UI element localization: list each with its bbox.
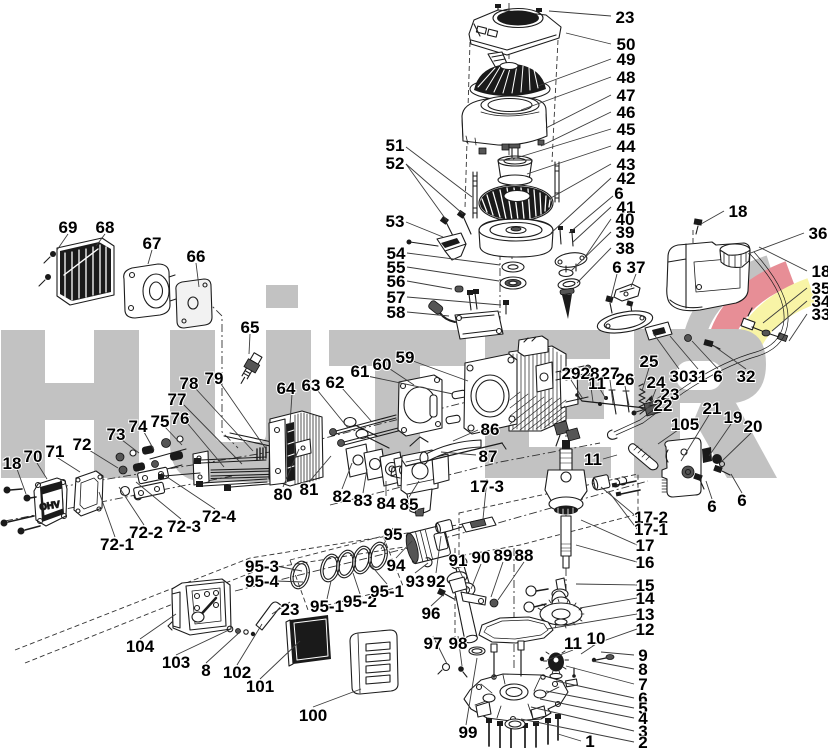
svg-text:82: 82: [333, 487, 352, 506]
svg-text:36: 36: [809, 224, 828, 243]
svg-text:52: 52: [386, 154, 405, 173]
svg-text:73: 73: [107, 425, 126, 444]
svg-text:72-4: 72-4: [202, 507, 237, 526]
svg-text:95-1: 95-1: [370, 582, 404, 601]
svg-text:16: 16: [636, 553, 655, 572]
svg-text:85: 85: [400, 495, 419, 514]
svg-text:91: 91: [449, 551, 468, 570]
svg-text:19: 19: [724, 408, 743, 427]
svg-text:44: 44: [617, 137, 636, 156]
svg-text:58: 58: [387, 303, 406, 322]
svg-text:20: 20: [744, 417, 763, 436]
svg-text:74: 74: [129, 417, 148, 436]
svg-text:31: 31: [689, 367, 708, 386]
svg-text:6: 6: [707, 497, 716, 516]
svg-text:104: 104: [126, 637, 155, 656]
svg-text:37: 37: [627, 258, 646, 277]
svg-text:99: 99: [459, 723, 478, 742]
svg-text:87: 87: [479, 447, 498, 466]
svg-text:97: 97: [424, 634, 443, 653]
svg-text:61: 61: [351, 362, 370, 381]
svg-text:60: 60: [373, 355, 392, 374]
svg-text:8: 8: [201, 661, 210, 680]
svg-text:89: 89: [494, 546, 513, 565]
svg-text:22: 22: [654, 396, 673, 415]
svg-text:64: 64: [277, 379, 296, 398]
svg-text:65: 65: [241, 318, 260, 337]
svg-text:25: 25: [640, 352, 659, 371]
svg-text:90: 90: [472, 548, 491, 567]
svg-text:49: 49: [617, 50, 636, 69]
svg-text:23: 23: [281, 600, 300, 619]
svg-text:68: 68: [96, 218, 115, 237]
svg-text:71: 71: [46, 442, 65, 461]
svg-text:2: 2: [638, 733, 647, 748]
svg-text:72-2: 72-2: [129, 523, 163, 542]
svg-text:92: 92: [427, 572, 446, 591]
svg-text:32: 32: [737, 367, 756, 386]
svg-text:95-1: 95-1: [310, 597, 344, 616]
svg-text:103: 103: [162, 653, 190, 672]
svg-text:79: 79: [205, 369, 224, 388]
svg-text:96: 96: [422, 604, 441, 623]
svg-text:12: 12: [636, 620, 655, 639]
svg-text:80: 80: [274, 485, 293, 504]
svg-text:72: 72: [73, 435, 92, 454]
svg-text:6: 6: [612, 258, 621, 277]
svg-text:26: 26: [616, 370, 635, 389]
svg-text:86: 86: [481, 420, 500, 439]
svg-text:75: 75: [151, 412, 170, 431]
svg-text:101: 101: [246, 677, 274, 696]
svg-text:53: 53: [386, 212, 405, 231]
svg-text:10: 10: [587, 629, 606, 648]
svg-text:11: 11: [564, 634, 582, 653]
svg-text:98: 98: [449, 634, 468, 653]
svg-text:17-3: 17-3: [470, 477, 504, 496]
svg-text:21: 21: [703, 399, 722, 418]
svg-text:66: 66: [187, 247, 206, 266]
svg-text:11: 11: [588, 374, 606, 393]
svg-text:95: 95: [384, 525, 403, 544]
svg-text:18: 18: [3, 454, 22, 473]
svg-text:105: 105: [671, 415, 699, 434]
svg-text:1: 1: [585, 732, 594, 748]
svg-text:95-4: 95-4: [245, 572, 280, 591]
svg-text:67: 67: [143, 234, 162, 253]
svg-text:59: 59: [396, 348, 415, 367]
svg-text:62: 62: [326, 373, 345, 392]
svg-text:72-3: 72-3: [167, 517, 201, 536]
svg-text:63: 63: [302, 376, 321, 395]
svg-text:83: 83: [354, 491, 373, 510]
svg-text:29: 29: [562, 364, 581, 383]
svg-text:33: 33: [812, 305, 828, 324]
svg-text:93: 93: [406, 572, 425, 591]
svg-text:76: 76: [171, 409, 190, 428]
svg-text:81: 81: [300, 480, 319, 499]
svg-text:51: 51: [386, 136, 405, 155]
svg-text:11: 11: [584, 450, 602, 469]
svg-text:84: 84: [377, 494, 396, 513]
svg-text:23: 23: [616, 8, 635, 27]
svg-text:30: 30: [670, 367, 689, 386]
svg-text:100: 100: [299, 706, 327, 725]
svg-text:48: 48: [617, 68, 636, 87]
svg-text:38: 38: [616, 239, 635, 258]
svg-text:77: 77: [168, 390, 187, 409]
svg-text:94: 94: [387, 556, 406, 575]
svg-text:18: 18: [729, 202, 748, 221]
svg-text:6: 6: [737, 491, 746, 510]
svg-text:88: 88: [515, 546, 534, 565]
svg-text:6: 6: [713, 367, 722, 386]
svg-text:70: 70: [24, 447, 43, 466]
svg-text:69: 69: [59, 218, 78, 237]
